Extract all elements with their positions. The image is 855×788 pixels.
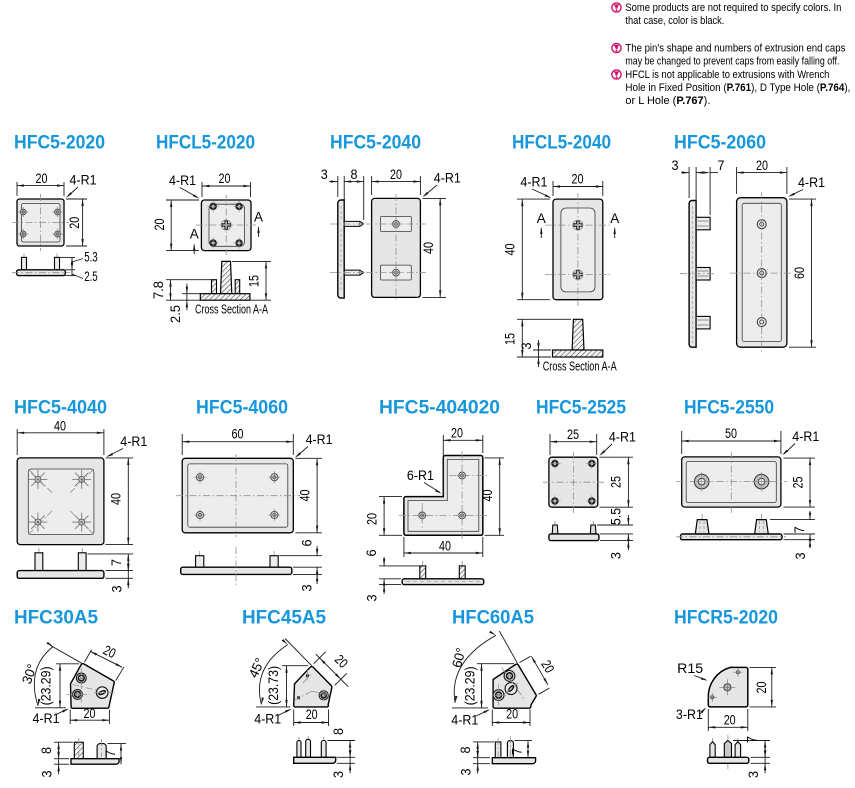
svg-text:HFCL5-2020: HFCL5-2020 xyxy=(156,132,255,154)
svg-text:40: 40 xyxy=(503,244,518,256)
svg-text:20: 20 xyxy=(754,682,769,694)
svg-text:3: 3 xyxy=(40,771,55,778)
svg-text:4-R1: 4-R1 xyxy=(609,430,636,445)
svg-text:8: 8 xyxy=(458,747,473,754)
svg-text:Cross Section A-A: Cross Section A-A xyxy=(195,302,268,317)
svg-text:40: 40 xyxy=(109,493,124,505)
svg-text:HFC60A5: HFC60A5 xyxy=(452,607,534,629)
svg-text:20: 20 xyxy=(219,171,231,186)
svg-text:8: 8 xyxy=(351,167,358,182)
svg-text:15: 15 xyxy=(503,333,518,345)
svg-text:60: 60 xyxy=(232,427,244,442)
svg-text:5.3: 5.3 xyxy=(84,250,98,265)
svg-text:20: 20 xyxy=(390,167,402,182)
svg-text:3: 3 xyxy=(321,167,328,182)
svg-text:40: 40 xyxy=(439,539,451,554)
svg-text:HFC5-4060: HFC5-4060 xyxy=(196,397,288,419)
svg-text:4-R1: 4-R1 xyxy=(120,434,147,449)
svg-text:3: 3 xyxy=(519,343,534,350)
svg-text:25: 25 xyxy=(609,476,624,488)
svg-text:20: 20 xyxy=(364,513,379,525)
svg-text:A: A xyxy=(610,211,619,226)
svg-text:HFC5-2020: HFC5-2020 xyxy=(14,132,105,154)
svg-text:7: 7 xyxy=(745,736,760,743)
svg-text:3-R1: 3-R1 xyxy=(676,707,703,722)
svg-text:20: 20 xyxy=(506,707,518,722)
svg-text:4-R1: 4-R1 xyxy=(169,173,196,188)
svg-text:7: 7 xyxy=(109,559,124,566)
svg-text:3: 3 xyxy=(672,158,679,173)
svg-text:4-R1: 4-R1 xyxy=(70,173,97,188)
svg-text:3: 3 xyxy=(458,769,473,776)
svg-text:20: 20 xyxy=(84,706,96,721)
svg-text:HFC5-2040: HFC5-2040 xyxy=(330,132,421,154)
svg-text:2.5: 2.5 xyxy=(84,269,98,284)
svg-text:4-R1: 4-R1 xyxy=(520,175,547,190)
svg-text:40: 40 xyxy=(297,490,312,502)
svg-text:4-R1: 4-R1 xyxy=(306,432,333,447)
svg-text:HFC5-404020: HFC5-404020 xyxy=(379,397,500,419)
svg-text:(23.29): (23.29) xyxy=(463,666,478,705)
svg-text:45°: 45° xyxy=(246,656,268,680)
svg-text:3: 3 xyxy=(793,553,808,560)
svg-text:that case, color is black.: that case, color is black. xyxy=(625,15,724,27)
svg-text:3: 3 xyxy=(300,585,315,592)
svg-text:5.5: 5.5 xyxy=(609,508,624,525)
svg-text:40: 40 xyxy=(480,490,495,502)
svg-text:20: 20 xyxy=(36,171,48,186)
svg-text:4-R1: 4-R1 xyxy=(451,712,478,727)
svg-text:6: 6 xyxy=(364,550,379,557)
svg-text:15: 15 xyxy=(247,275,262,287)
svg-text:HFCL5-2040: HFCL5-2040 xyxy=(512,132,611,154)
svg-text:7: 7 xyxy=(718,158,725,173)
svg-text:4-R1: 4-R1 xyxy=(434,171,461,186)
svg-text:20: 20 xyxy=(67,217,82,229)
svg-text:8: 8 xyxy=(331,728,346,735)
svg-text:50: 50 xyxy=(725,426,737,441)
svg-text:A: A xyxy=(254,210,263,225)
svg-text:3: 3 xyxy=(746,771,761,778)
svg-text:6-R1: 6-R1 xyxy=(407,468,434,483)
svg-text:7.8: 7.8 xyxy=(151,281,166,299)
svg-text:HFCL is not applicable to extr: HFCL is not applicable to extrusions wit… xyxy=(625,69,829,81)
svg-text:2.5: 2.5 xyxy=(168,305,183,323)
svg-text:A: A xyxy=(537,211,546,226)
svg-text:6: 6 xyxy=(299,540,314,547)
svg-text:HFC5-2525: HFC5-2525 xyxy=(536,397,626,419)
svg-text:3: 3 xyxy=(609,552,624,559)
svg-text:The pin's shape and numbers of: The pin's shape and numbers of extrusion… xyxy=(625,43,845,55)
svg-text:4-R1: 4-R1 xyxy=(254,712,281,727)
svg-text:4-R1: 4-R1 xyxy=(33,711,60,726)
svg-text:R15: R15 xyxy=(677,661,703,676)
svg-text:20: 20 xyxy=(756,158,768,173)
svg-text:60: 60 xyxy=(792,267,807,279)
svg-text:3: 3 xyxy=(364,595,379,602)
svg-text:Hole in Fixed Position (P.761): Hole in Fixed Position (P.761), D Type H… xyxy=(625,82,850,94)
svg-text:7: 7 xyxy=(510,748,525,755)
svg-text:A: A xyxy=(190,227,199,242)
svg-text:20: 20 xyxy=(306,707,318,722)
svg-text:(23.73): (23.73) xyxy=(266,666,281,705)
svg-text:25: 25 xyxy=(790,477,805,489)
svg-text:8: 8 xyxy=(39,747,54,754)
svg-text:(23.29): (23.29) xyxy=(38,666,53,705)
svg-text:20: 20 xyxy=(152,219,167,231)
svg-text:20: 20 xyxy=(572,172,584,187)
svg-text:HFC5-2550: HFC5-2550 xyxy=(684,397,774,419)
svg-text:60°: 60° xyxy=(449,646,469,669)
svg-text:HFCR5-2020: HFCR5-2020 xyxy=(674,607,778,629)
svg-text:40: 40 xyxy=(421,242,436,254)
svg-text:25: 25 xyxy=(567,427,579,442)
svg-text:20: 20 xyxy=(724,713,736,728)
svg-text:or L Hole (P.767).: or L Hole (P.767). xyxy=(625,95,710,107)
svg-text:HFC45A5: HFC45A5 xyxy=(242,607,326,629)
svg-text:may be changed to prevent caps: may be changed to prevent caps from easi… xyxy=(625,56,839,68)
svg-text:HFC30A5: HFC30A5 xyxy=(14,607,98,629)
svg-text:4-R1: 4-R1 xyxy=(798,175,825,190)
svg-text:7: 7 xyxy=(103,750,118,757)
svg-text:20: 20 xyxy=(332,652,351,671)
svg-text:3: 3 xyxy=(331,771,346,778)
svg-text:40: 40 xyxy=(54,419,66,434)
svg-text:HFC5-4040: HFC5-4040 xyxy=(14,397,107,419)
svg-text:30°: 30° xyxy=(19,662,40,686)
svg-text:Cross Section A-A: Cross Section A-A xyxy=(543,359,617,374)
svg-text:3: 3 xyxy=(110,586,125,593)
svg-text:7: 7 xyxy=(792,526,807,533)
svg-text:Some products are not required: Some products are not required to specif… xyxy=(625,2,841,14)
svg-text:4-R1: 4-R1 xyxy=(792,429,819,444)
svg-text:HFC5-2060: HFC5-2060 xyxy=(674,132,766,154)
svg-text:20: 20 xyxy=(451,426,463,441)
